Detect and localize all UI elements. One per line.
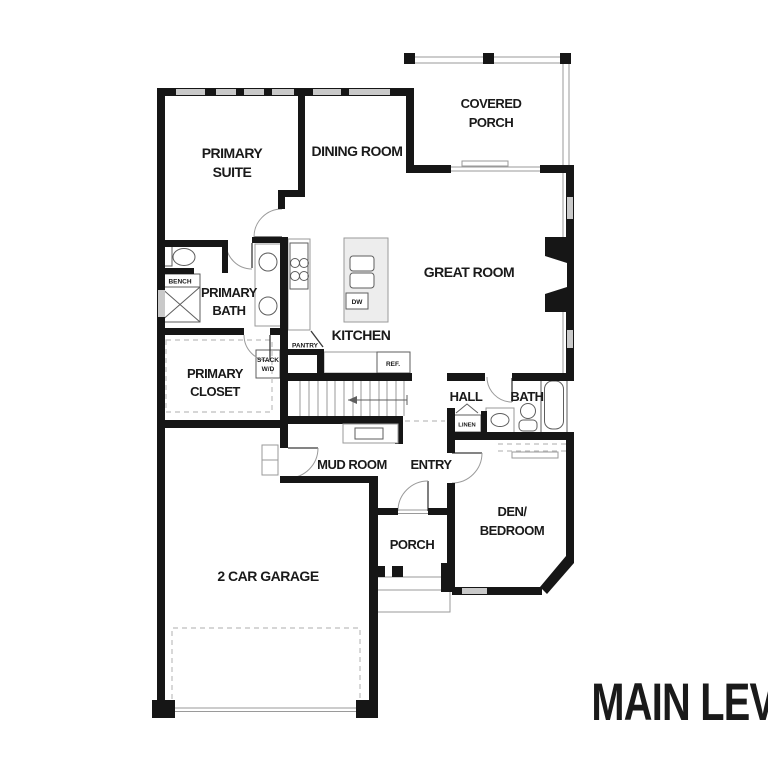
kitchen-island — [344, 238, 388, 322]
label-primary-closet-line2: CLOSET — [190, 384, 240, 399]
porch-posts — [374, 53, 571, 592]
label-linen: LINEN — [458, 423, 475, 429]
label-pantry: PANTRY — [292, 343, 319, 350]
toilet-bowl — [173, 249, 195, 266]
label-dishwasher: DW — [352, 299, 364, 306]
label-stack-line1: STACK — [257, 357, 279, 364]
label-primary-closet-line1: PRIMARY — [187, 366, 244, 381]
den-closet — [498, 444, 566, 458]
garage-landing-steps — [262, 445, 278, 475]
stack-washer-dryer — [256, 350, 280, 378]
label-entry: ENTRY — [410, 457, 452, 472]
double-vanity — [255, 244, 281, 326]
toilet-tank — [519, 420, 537, 431]
label-mud-room: MUD ROOM — [317, 457, 387, 472]
label-primary-suite-line1: PRIMARY — [202, 145, 264, 161]
island-sink-basin — [350, 256, 374, 271]
label-primary-suite-line2: SUITE — [213, 164, 252, 180]
front-door-threshold — [398, 510, 428, 514]
bath-vanity — [486, 408, 514, 433]
toilet-bowl — [521, 404, 536, 419]
label-primary-bath-line2: BATH — [212, 303, 245, 318]
plan-title: MAIN LEVEL — [591, 672, 768, 731]
bathtub-basin — [545, 381, 564, 429]
label-primary-bath-line1: PRIMARY — [201, 285, 258, 300]
label-bath: BATH — [510, 389, 543, 404]
garage-door — [172, 628, 360, 712]
label-great-room: GREAT ROOM — [424, 264, 514, 280]
label-den-bedroom-line1: DEN/ — [497, 504, 527, 519]
linen-bifold-door — [456, 404, 478, 413]
mud-room-bench — [343, 424, 398, 443]
label-porch: PORCH — [390, 537, 435, 552]
label-kitchen: KITCHEN — [332, 327, 391, 343]
label-covered-porch-line1: COVERED — [461, 96, 522, 111]
floor-plan-drawing: PRIMARY SUITE DINING ROOM COVERED PORCH … — [0, 0, 768, 768]
label-hall: HALL — [450, 389, 483, 404]
range-counter — [288, 239, 310, 330]
closet-slider-door — [512, 452, 558, 458]
label-bath-bench: BENCH — [168, 279, 191, 286]
floor-plan-page: PRIMARY SUITE DINING ROOM COVERED PORCH … — [0, 0, 768, 768]
covered-porch-structure — [411, 57, 569, 171]
label-stack-line2: W/D — [262, 366, 275, 373]
staircase — [300, 381, 407, 416]
label-garage: 2 CAR GARAGE — [217, 568, 319, 584]
label-covered-porch-line2: PORCH — [469, 115, 514, 130]
label-dining-room: DINING ROOM — [312, 143, 403, 159]
label-den-bedroom-line2: BEDROOM — [480, 523, 544, 538]
label-refrigerator: REF. — [386, 361, 400, 368]
porch-steps — [376, 577, 452, 612]
plan-title-group: MAIN LEVEL — [591, 672, 768, 731]
island-sink-basin — [350, 273, 374, 288]
